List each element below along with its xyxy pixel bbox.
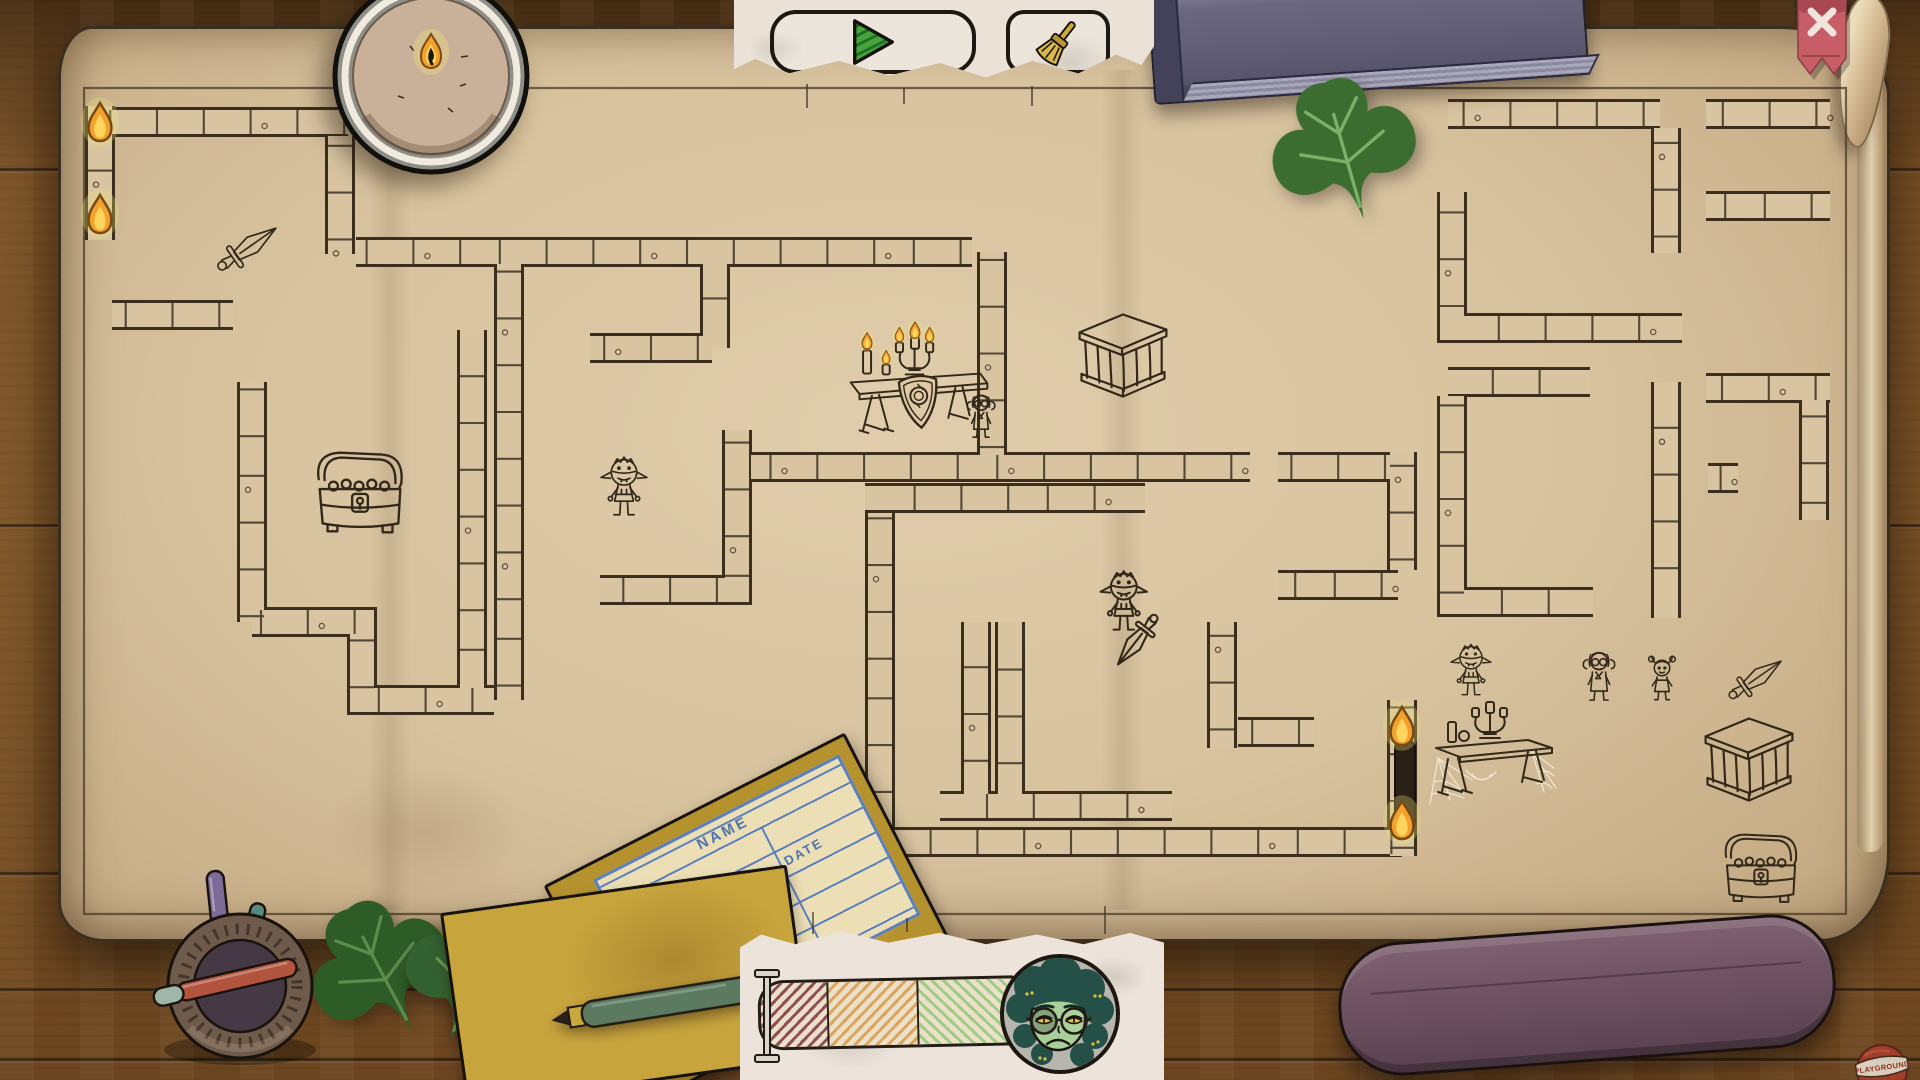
pen-cup: [150, 858, 330, 1070]
map-item-girl[interactable]: [1645, 655, 1679, 707]
map-item-scene-table[interactable]: [824, 318, 1006, 454]
play-button[interactable]: [770, 10, 976, 74]
medusa-avatar: [998, 952, 1122, 1076]
ink-streak: [906, 918, 908, 932]
ink-drip: [1031, 86, 1033, 106]
ink-drip: [806, 84, 808, 108]
map-item-cage[interactable]: [1068, 306, 1178, 406]
map-item-goblin[interactable]: [598, 452, 650, 530]
play-triangle-icon: [848, 15, 898, 69]
progress-segment-mid: [828, 980, 919, 1046]
ink-streak: [1104, 906, 1106, 934]
ink-streak: [812, 912, 814, 934]
progress-slider[interactable]: [752, 968, 782, 1064]
clean-button[interactable]: [1006, 10, 1110, 74]
playground-logo: PLAYGROUND: [1846, 1040, 1918, 1080]
ink-drip: [903, 88, 905, 104]
candle: [328, 0, 534, 182]
map-item-goblin-sword[interactable]: [1098, 566, 1178, 680]
close-button[interactable]: [1796, 0, 1850, 92]
progress-bar: [757, 975, 1016, 1050]
broom-icon: [1030, 14, 1086, 70]
map-item-chest[interactable]: [302, 442, 418, 540]
date-field-label: DATE: [781, 835, 825, 869]
map-item-librarian[interactable]: [1580, 648, 1618, 706]
map-item-torch[interactable]: [1385, 704, 1419, 750]
map-item-web-table[interactable]: [1428, 700, 1560, 808]
map-item-torch[interactable]: [83, 192, 117, 238]
map-item-chest[interactable]: [1712, 822, 1810, 912]
progress-card: [740, 928, 1164, 1080]
map-item-goblin[interactable]: [1448, 640, 1494, 708]
game-screen: NAME DATE: [0, 0, 1920, 1080]
map-item-cage[interactable]: [1698, 710, 1800, 810]
map-item-torch[interactable]: [83, 100, 117, 146]
map-item-torch[interactable]: [1385, 798, 1419, 844]
